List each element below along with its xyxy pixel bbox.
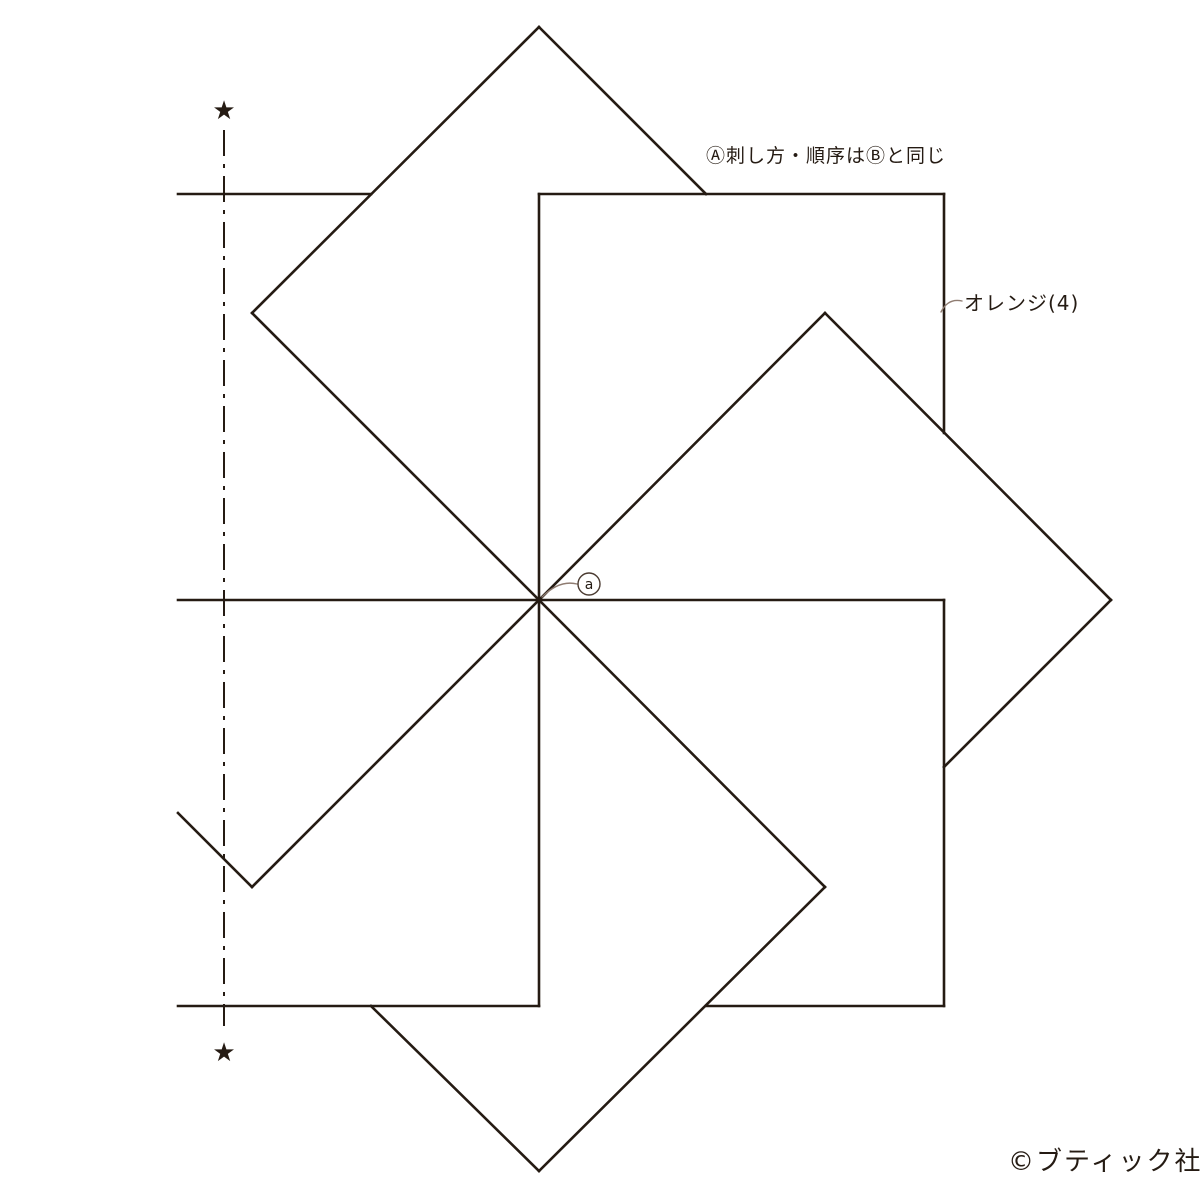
pattern-sheet: ★★a Ⓐ刺し方・順序はⒷと同じ オレンジ(4) ©ブティック社 bbox=[0, 0, 1200, 1200]
center-marker-letter: a bbox=[585, 577, 594, 593]
pattern-line bbox=[539, 887, 825, 1171]
pattern-line bbox=[371, 1006, 539, 1171]
pattern-line bbox=[252, 27, 539, 313]
pattern-line bbox=[252, 313, 539, 600]
pattern-line bbox=[178, 813, 252, 887]
copyright-label: ©ブティック社 bbox=[1008, 1146, 1200, 1180]
star-mark: ★ bbox=[212, 1038, 235, 1068]
pattern-line bbox=[252, 600, 539, 887]
pattern-line bbox=[825, 313, 1111, 600]
stitch-note-label: Ⓐ刺し方・順序はⒷと同じ bbox=[706, 144, 946, 169]
color-callout-label: オレンジ(4) bbox=[964, 290, 1079, 316]
pattern-line bbox=[539, 600, 825, 887]
pattern-line bbox=[539, 313, 825, 600]
pattern-line bbox=[539, 27, 706, 194]
pinwheel-diagram: ★★a bbox=[0, 0, 1200, 1200]
pattern-line bbox=[944, 600, 1111, 767]
star-mark: ★ bbox=[212, 96, 235, 126]
